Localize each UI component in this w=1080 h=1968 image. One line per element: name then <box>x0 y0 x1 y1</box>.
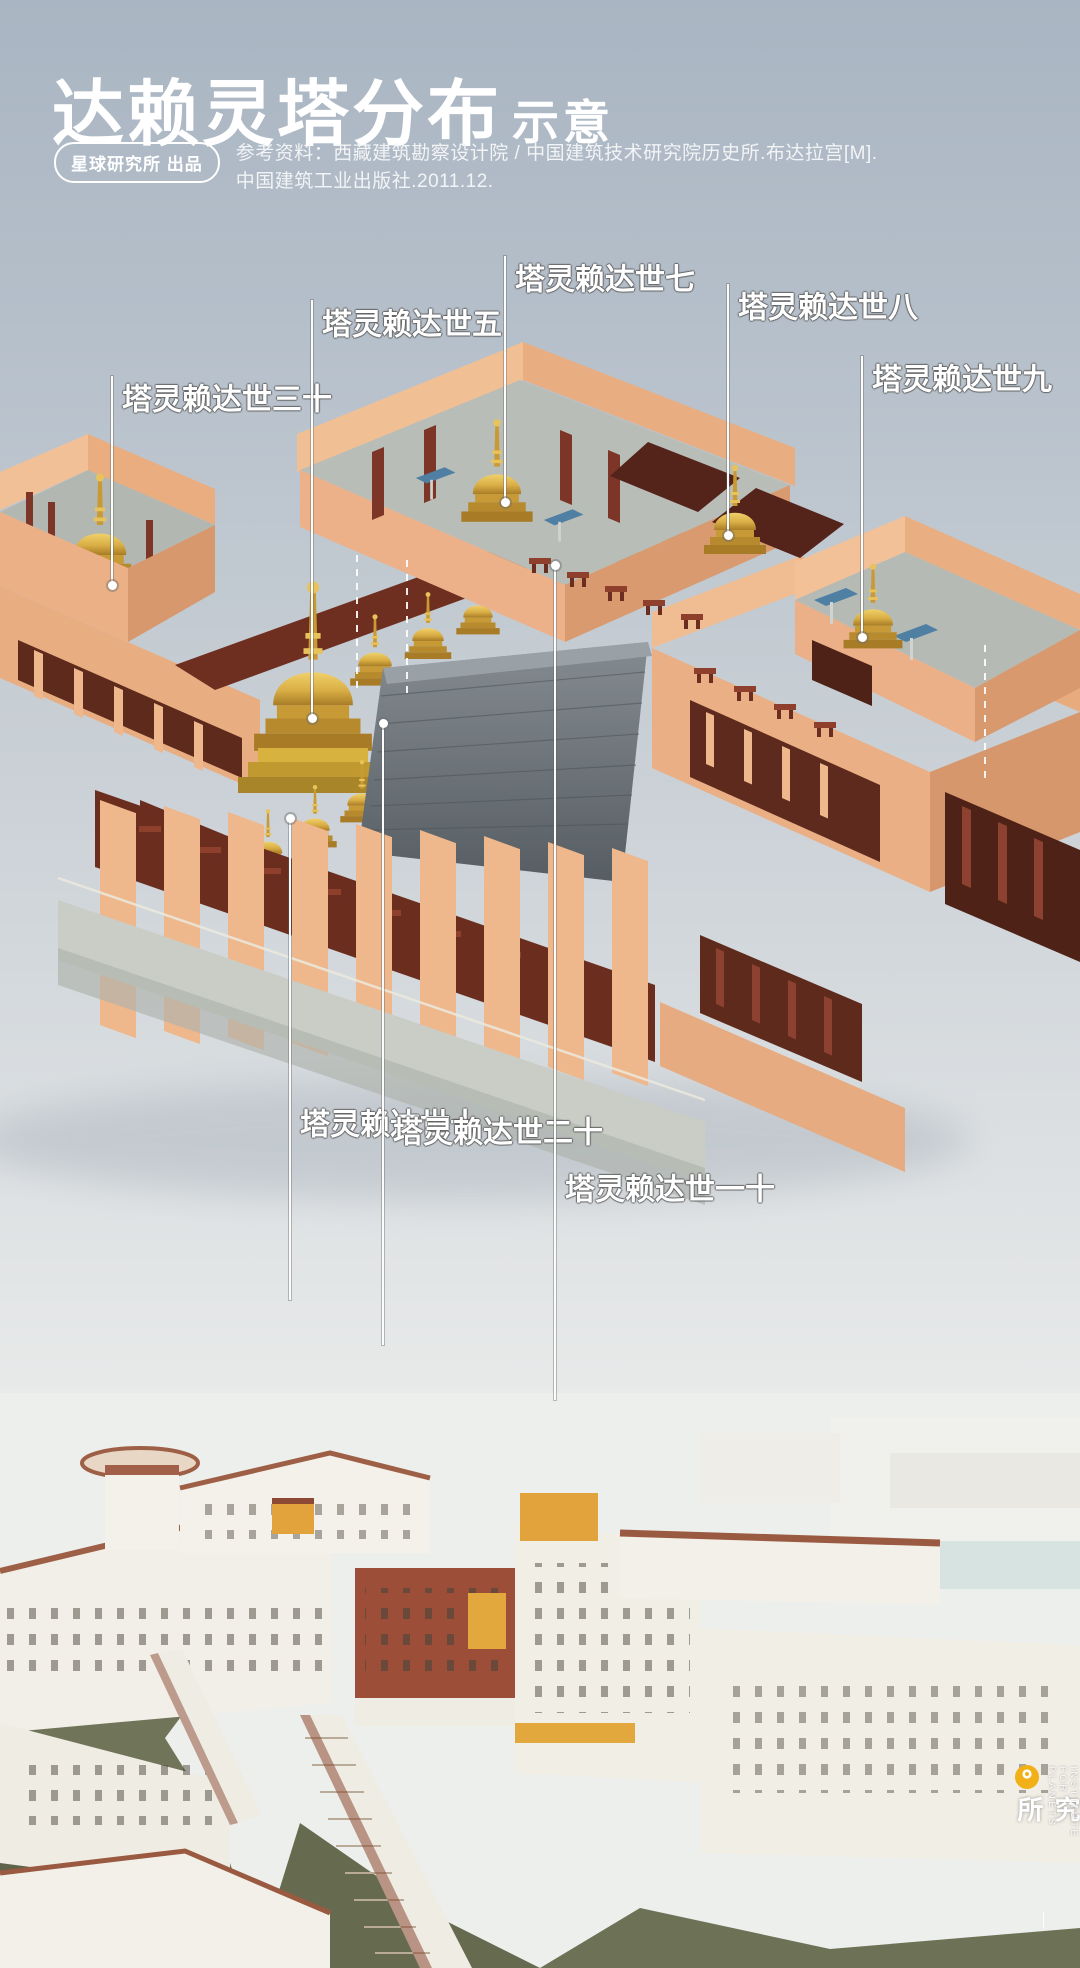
producer-badge: 星球研究所 出品 <box>54 142 220 183</box>
reference-text: 参考资料：西藏建筑勘察设计院 / 中国建筑技术研究院历史所.布达拉宫[M]. 中… <box>236 140 878 196</box>
planet-sun-icon <box>1014 1764 1040 1790</box>
reference-line-1: 参考资料：西藏建筑勘察设计院 / 中国建筑技术研究院历史所.布达拉宫[M]. <box>236 143 878 164</box>
logo-text-en: INSTITUTE FOR PLANETS <box>1046 1766 1079 1838</box>
leader-dot <box>724 531 733 540</box>
logo-divider <box>1043 1912 1044 1928</box>
leader-dot <box>108 581 117 590</box>
header-meta: 星球研究所 出品 参考资料：西藏建筑勘察设计院 / 中国建筑技术研究院历史所.布… <box>54 140 1054 196</box>
stupa-label-text: 十一世达赖灵塔 <box>561 1173 771 1206</box>
potala-palace-photo <box>0 1393 1080 1968</box>
stupa-label-text: 八世达赖灵塔 <box>734 291 914 324</box>
stupa-label-text: 十三世达赖灵塔 <box>118 383 328 416</box>
poster-canvas: 达赖灵塔分布示意 星球研究所 出品 参考资料：西藏建筑勘察设计院 / 中国建筑技… <box>0 0 1080 1968</box>
leader-line <box>504 256 506 502</box>
stupa-label-text: 十二世达赖灵塔 <box>389 1116 599 1149</box>
leader-line <box>111 376 113 585</box>
reference-line-2: 中国建筑工业出版社.2011.12. <box>236 171 494 192</box>
leader-line <box>861 356 863 637</box>
leader-line <box>382 723 384 1345</box>
leader-line <box>289 818 291 1300</box>
stupa-label-text: 九世达赖灵塔 <box>868 363 1048 396</box>
leader-dot <box>501 498 510 507</box>
ninth-stupa-wing <box>795 516 1080 742</box>
leader-line <box>311 300 313 718</box>
stupa-label-text: 五世达赖灵塔 <box>318 308 498 341</box>
leader-line <box>727 284 729 535</box>
leader-line <box>554 565 556 1400</box>
leader-dot <box>379 719 388 728</box>
stupa-label-text: 七世达赖灵塔 <box>511 263 691 296</box>
leader-dot <box>308 714 317 723</box>
leader-dot <box>858 633 867 642</box>
leader-dot <box>551 561 560 570</box>
stupa-distribution-model <box>0 0 1080 1450</box>
leader-dot <box>286 814 295 823</box>
